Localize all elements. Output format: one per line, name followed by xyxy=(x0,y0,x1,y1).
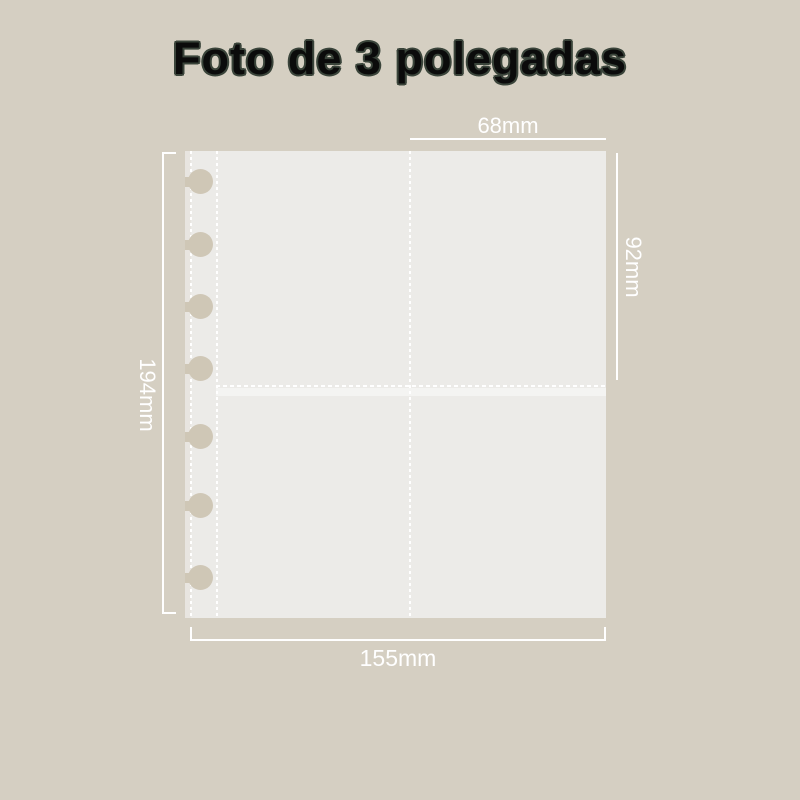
binder-hole xyxy=(185,232,213,258)
pocket-opening-highlight xyxy=(216,388,606,396)
dimension-bottom-tick-left xyxy=(190,627,192,639)
binder-hole-circle xyxy=(188,232,213,257)
dimension-right-line xyxy=(616,153,618,380)
binder-hole-circle xyxy=(188,356,213,381)
binder-hole xyxy=(185,565,213,591)
dimension-bottom-tick-right xyxy=(604,627,606,639)
dimension-bottom-label: 155mm xyxy=(190,647,606,670)
binder-hole-circle xyxy=(188,294,213,319)
dimension-top-label: 68mm xyxy=(410,115,606,137)
stitch-line-binding-outer xyxy=(190,151,192,618)
dimension-bottom-line xyxy=(190,639,606,641)
dimension-left-line xyxy=(162,152,164,614)
dimension-top-line xyxy=(410,138,606,140)
dimension-left-tick-bottom xyxy=(162,612,176,614)
binder-hole xyxy=(185,294,213,320)
dimension-left-tick-top xyxy=(162,152,176,154)
album-sleeve-page xyxy=(185,151,606,618)
binder-hole xyxy=(185,493,213,519)
binder-hole-circle xyxy=(188,493,213,518)
binder-hole-circle xyxy=(188,169,213,194)
product-showcase: Foto de 3 polegadas 68mm 92mm 194mm 155m… xyxy=(0,0,800,800)
page-title: Foto de 3 polegadas xyxy=(0,33,800,85)
binder-hole-circle xyxy=(188,424,213,449)
binder-hole xyxy=(185,424,213,450)
dimension-left-label: 194mm xyxy=(136,358,158,431)
binder-hole xyxy=(185,356,213,382)
stitch-line-center-horizontal xyxy=(216,385,606,387)
binder-hole xyxy=(185,169,213,195)
dimension-right-label: 92mm xyxy=(622,236,644,297)
binder-hole-circle xyxy=(188,565,213,590)
